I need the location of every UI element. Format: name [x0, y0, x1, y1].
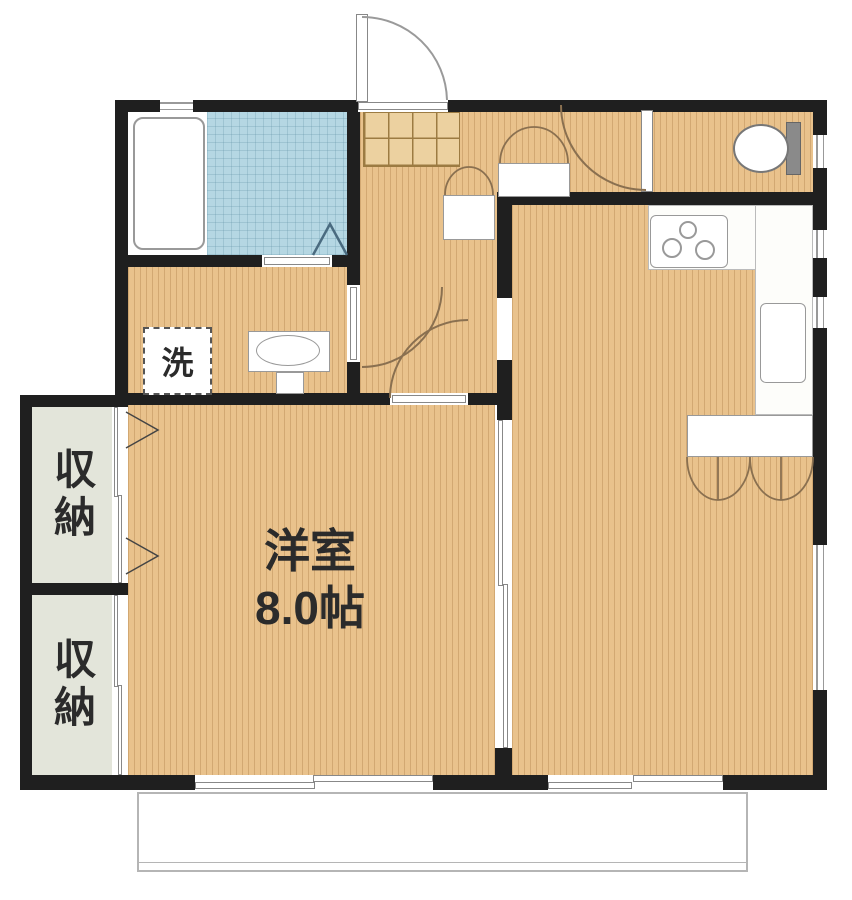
bathroom-window [160, 100, 193, 112]
washing-machine-space: 洗 [143, 327, 212, 395]
bathroom-door-panel [264, 257, 330, 265]
washbasin-bowl [256, 335, 320, 366]
wall-segment [433, 775, 548, 790]
bedroom-door-leaf [392, 395, 466, 403]
storage-door-panel [114, 595, 118, 687]
entrance-door-arc [362, 17, 447, 100]
hall-closet-b [443, 195, 495, 240]
wall-segment [193, 100, 358, 112]
wall-segment [723, 775, 820, 790]
kitchen-sink [760, 303, 806, 383]
sliding-partition-panel [498, 420, 503, 586]
bathroom-tile-area [207, 112, 347, 255]
toilet-door-leaf [641, 110, 653, 192]
storage-door-panel [118, 495, 122, 583]
sliding-window-panel [195, 782, 315, 789]
kitchen-window [813, 230, 827, 258]
sliding-window-panel [313, 775, 433, 782]
wall-segment [495, 748, 512, 775]
washroom-door-leaf [350, 287, 357, 360]
wall-segment [20, 395, 128, 407]
wall-segment [813, 690, 827, 790]
stove-burner [679, 221, 697, 239]
stove-burner [662, 238, 682, 258]
storage-door-panel [114, 407, 118, 497]
kitchen-stove [650, 215, 728, 268]
balcony-rail-line [139, 862, 746, 864]
entrance-sill [358, 102, 448, 110]
wall-segment [115, 100, 128, 405]
washbasin [248, 331, 330, 372]
stove-burner [695, 240, 715, 260]
shoe-cabinet [363, 112, 460, 167]
wall-segment [813, 258, 827, 297]
sliding-window-panel [548, 782, 632, 789]
wall-segment [347, 112, 360, 285]
living-closet [687, 415, 813, 457]
wall-segment [20, 775, 195, 790]
western-room-label: 洋室 8.0帖 [200, 515, 420, 645]
laundry-label: 洗 [161, 338, 193, 384]
toilet-window [813, 135, 827, 168]
storage-bottom-door [112, 595, 125, 775]
storage-door-panel [118, 685, 122, 775]
wall-segment [448, 100, 825, 112]
sliding-partition-panel [503, 584, 508, 748]
entrance-door-leaf [356, 14, 368, 102]
hall-closet-a [498, 163, 570, 197]
wall-segment [813, 328, 827, 545]
washbasin-stand [276, 372, 304, 394]
wall-segment [20, 583, 128, 595]
wall-segment [128, 255, 262, 267]
bathtub [133, 117, 205, 250]
toilet-bowl [733, 124, 789, 173]
floor-plan: 洗 洋室 8.0帖 収納 収納 [0, 0, 852, 900]
balcony [137, 792, 748, 872]
sliding-window-panel [633, 775, 723, 782]
storage-top-door [112, 407, 125, 583]
western-room-size: 8.0帖 [255, 580, 365, 638]
wall-segment [497, 195, 512, 298]
storage-top-label: 収納 [32, 412, 112, 578]
wall-segment [813, 100, 827, 135]
western-room-name: 洋室 [264, 523, 356, 581]
sliding-partition [495, 420, 512, 748]
storage-bottom-label: 収納 [32, 602, 112, 768]
wall-segment [497, 360, 512, 420]
living-window [813, 545, 827, 690]
ldk-entry-opening [497, 298, 512, 360]
kitchen-window [813, 297, 827, 328]
